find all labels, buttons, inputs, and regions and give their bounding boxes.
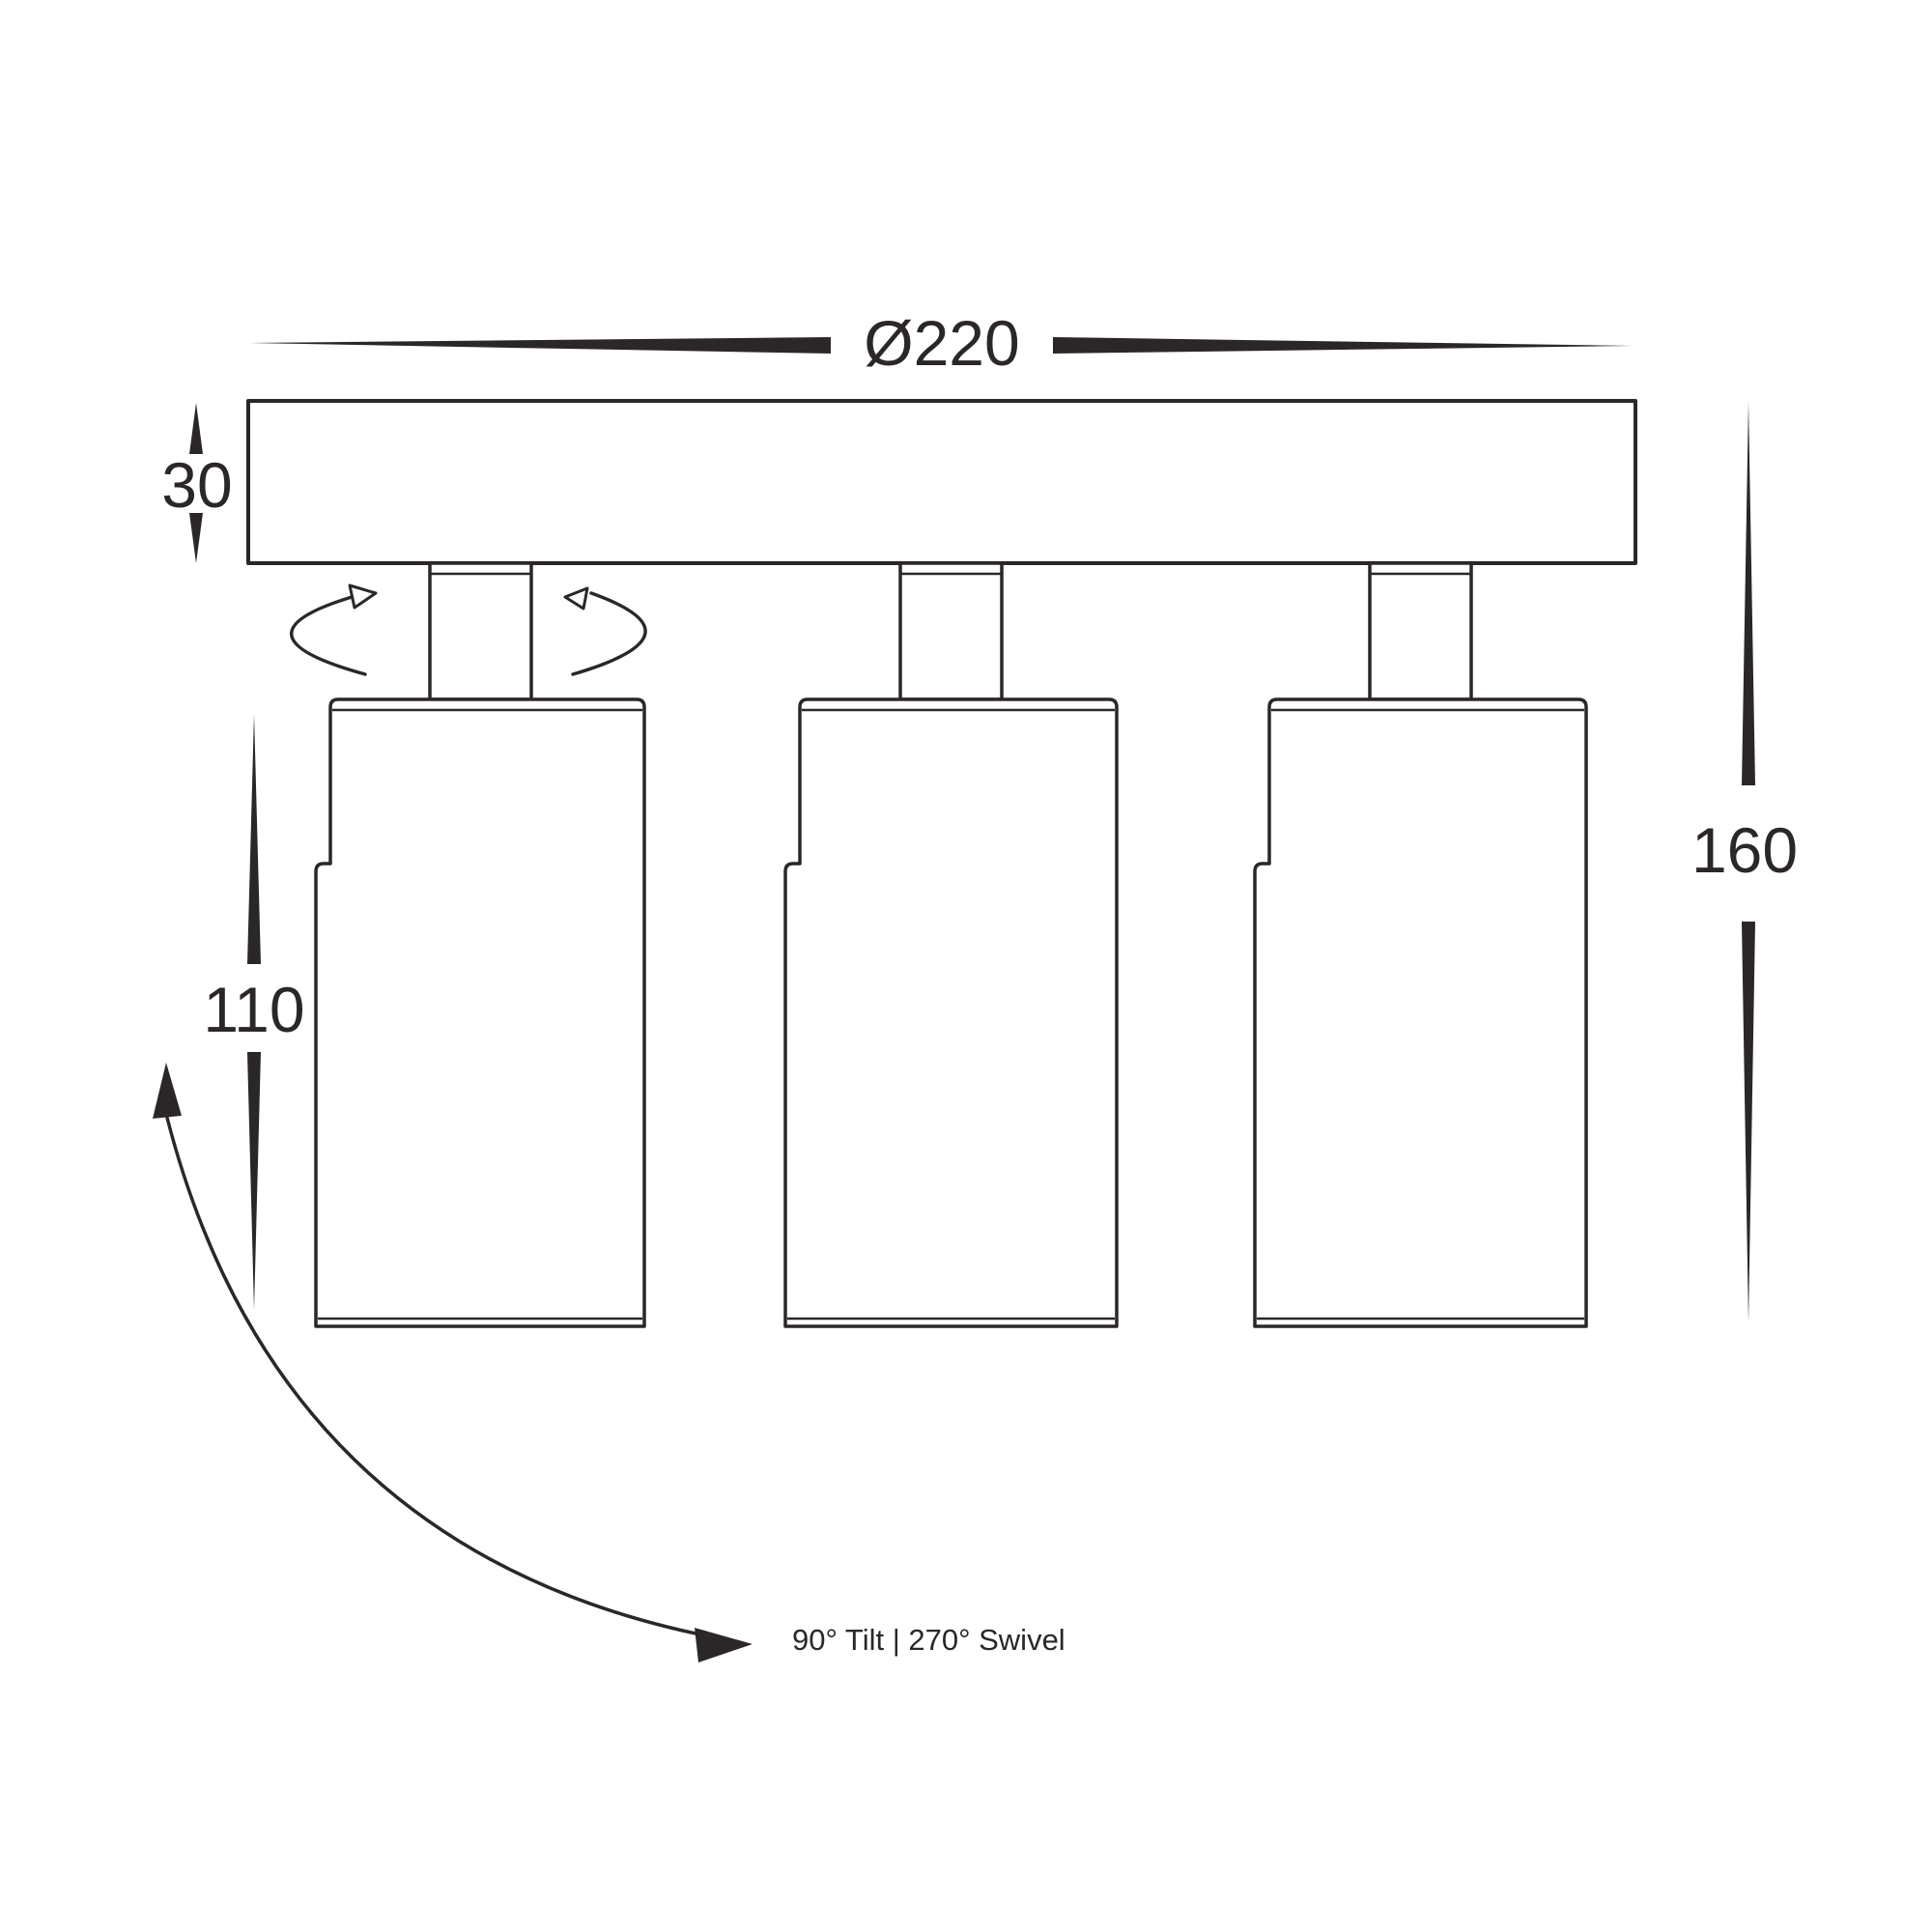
neck-3: [1370, 563, 1471, 699]
neck-3-body: [1370, 563, 1471, 699]
neck-2: [900, 563, 1002, 699]
spotlight-head-3-body: [1255, 699, 1586, 1326]
neck-1: [430, 563, 531, 699]
spotlight-head-2-body: [785, 699, 1117, 1326]
neck-1-body: [430, 563, 531, 699]
spotlight-head-2: [785, 699, 1117, 1326]
mounting-bar: [248, 401, 1635, 563]
spotlight-head-3: [1255, 699, 1586, 1326]
neck-2-body: [900, 563, 1002, 699]
head-dim-label: 110: [203, 974, 304, 1045]
technical-drawing-canvas: Ø220 30 110 160 90° Tilt | 270° Swivel: [0, 0, 1932, 1932]
plate-dim-label: 30: [161, 449, 232, 521]
tilt-swivel-note-label: 90° Tilt | 270° Swivel: [792, 1623, 1065, 1657]
spotlight-head-1: [316, 699, 644, 1326]
spotlight-dimension-diagram: Ø220 30 110 160 90° Tilt | 270° Swivel: [0, 0, 1932, 1932]
height-dim-label: 160: [1691, 814, 1798, 886]
fixture-outline: [248, 401, 1635, 1326]
diameter-dim-label: Ø220: [864, 307, 1019, 379]
spotlight-head-1-body: [316, 699, 644, 1326]
